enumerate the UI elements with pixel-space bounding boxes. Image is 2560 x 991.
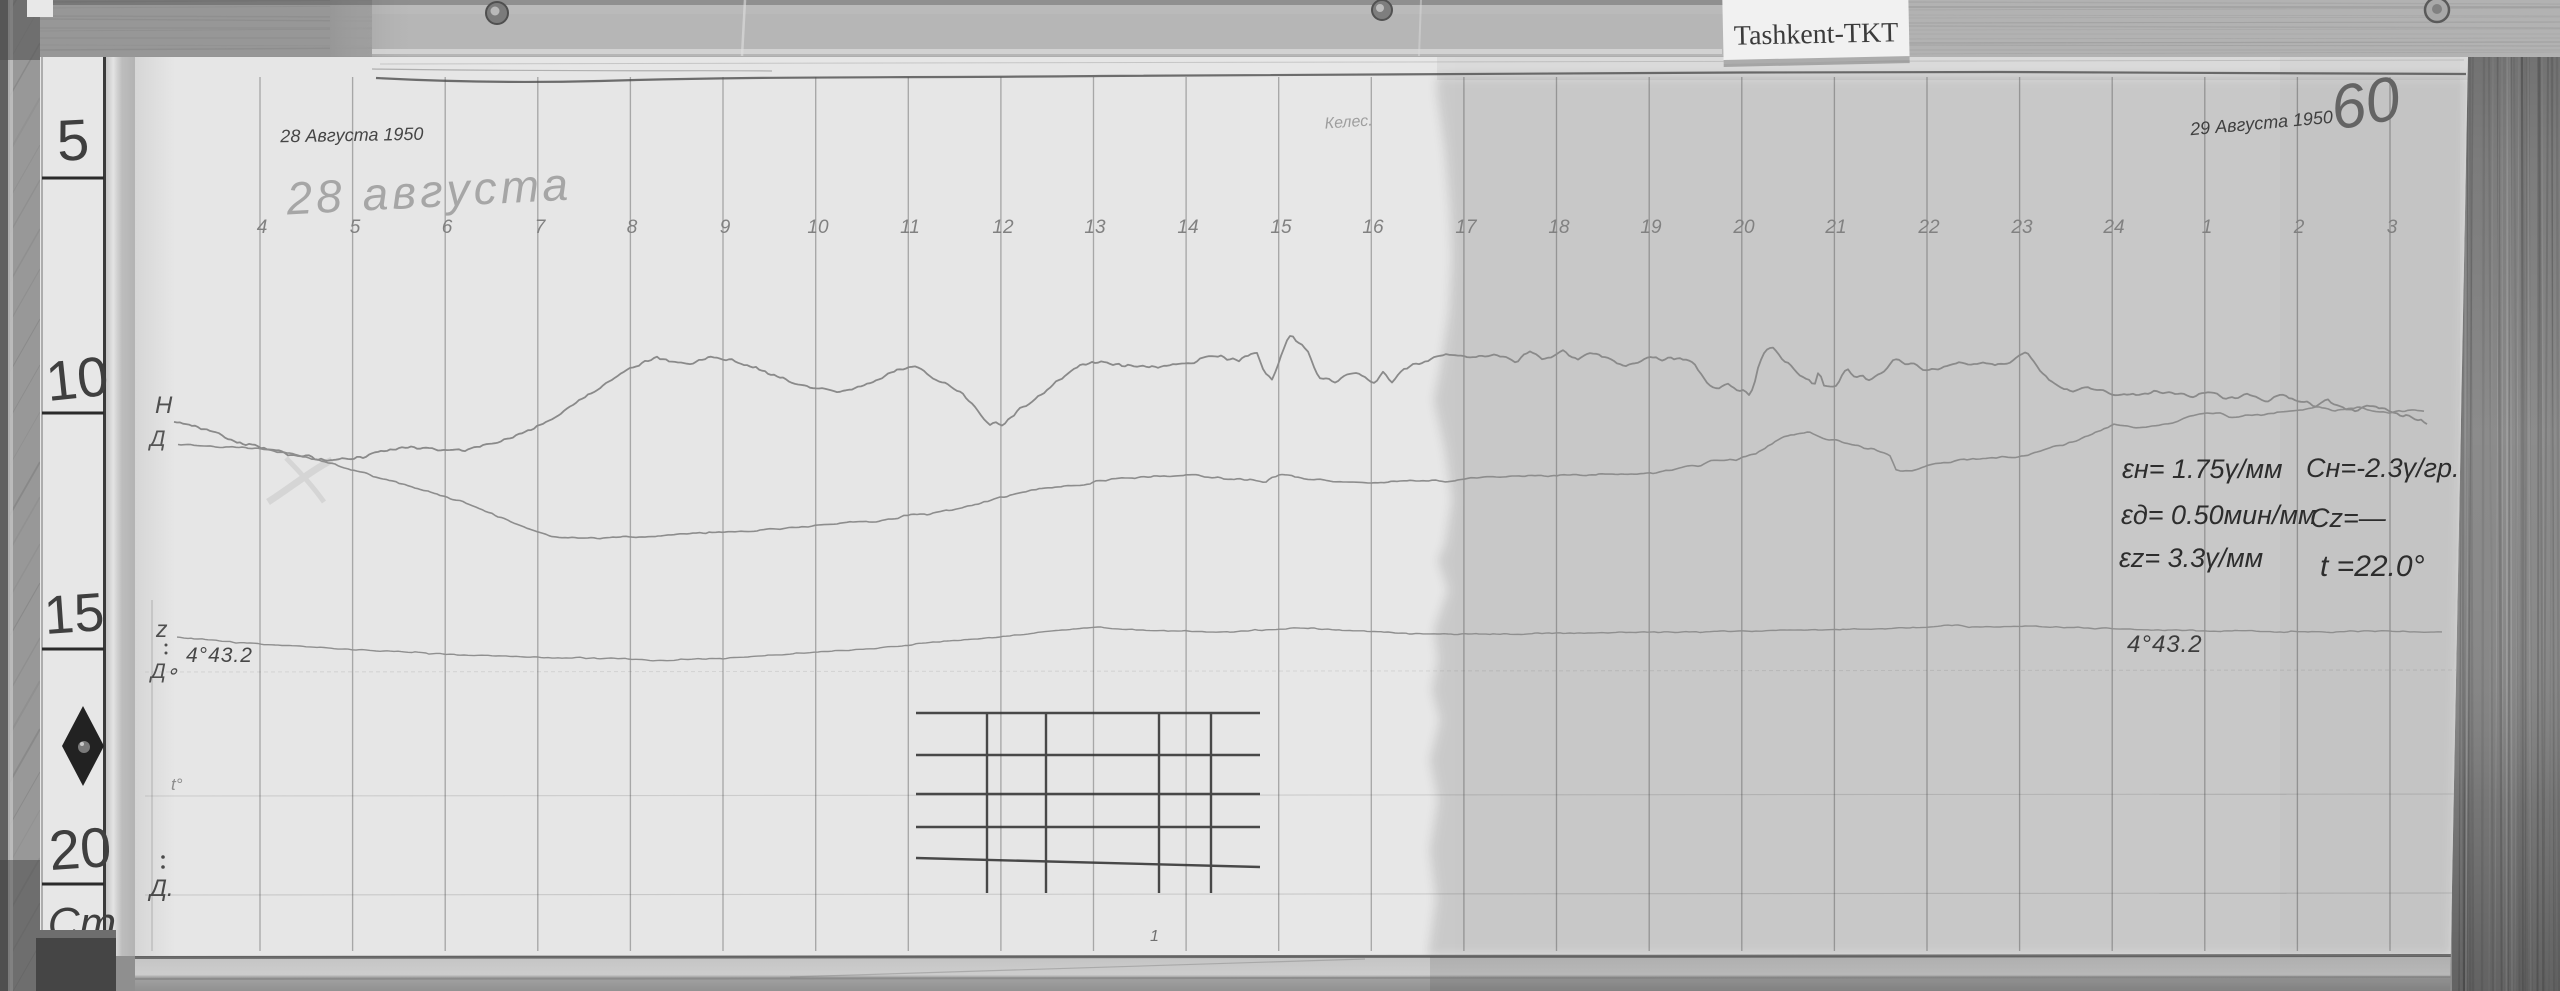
svg-text:z: z [155,616,168,642]
svg-text:8: 8 [627,217,638,238]
svg-text:Сz=—: Сz=— [2310,503,2387,533]
svg-text:17: 17 [1455,217,1478,238]
svg-text:4: 4 [257,217,268,238]
svg-text:10: 10 [807,217,829,238]
svg-text:18: 18 [1548,217,1570,238]
svg-text:13: 13 [1084,217,1106,238]
svg-text:20: 20 [47,815,114,882]
svg-text:24: 24 [2102,217,2124,238]
svg-text:28 Августа 1950: 28 Августа 1950 [279,124,423,147]
svg-text:Келес.: Келес. [1324,112,1373,132]
svg-text:Сн=-2.3γ/гр.: Сн=-2.3γ/гр. [2306,453,2459,483]
svg-text:12: 12 [992,217,1014,238]
svg-text:16: 16 [1362,217,1384,238]
svg-text:Tashkent-TKT: Tashkent-TKT [1734,17,1899,51]
svg-text:14: 14 [1177,217,1198,238]
svg-text:23: 23 [2010,217,2033,238]
svg-text:22: 22 [1917,217,1940,238]
svg-text:7: 7 [535,217,547,238]
svg-text:Д.: Д. [147,875,174,902]
svg-text:εz= 3.3γ/мм: εz= 3.3γ/мм [2119,543,2263,573]
svg-text:t =22.0°: t =22.0° [2320,550,2425,583]
svg-text:4°43.2: 4°43.2 [2127,631,2203,658]
svg-text:Д∘: Д∘ [149,660,179,683]
svg-text:11: 11 [900,217,920,238]
svg-text:60: 60 [2325,64,2405,144]
svg-text:6: 6 [442,217,453,238]
svg-text:20: 20 [1732,217,1755,238]
svg-text:Н: Н [155,392,173,419]
svg-text:t°: t° [171,775,183,794]
svg-text:9: 9 [720,217,731,238]
svg-text:1: 1 [1150,928,1159,945]
svg-text:1: 1 [2202,217,2213,238]
svg-text:εн= 1.75γ/мм: εн= 1.75γ/мм [2122,454,2283,484]
svg-text:15: 15 [42,582,106,646]
svg-text:15: 15 [1270,217,1292,238]
svg-text:2: 2 [2293,217,2305,238]
svg-text:3: 3 [2387,217,2398,238]
svg-text:εд= 0.50мин/мм: εд= 0.50мин/мм [2121,500,2317,530]
svg-text:21: 21 [1824,217,1846,238]
svg-text:10: 10 [43,344,112,413]
svg-text:4°43.2: 4°43.2 [186,644,253,667]
svg-text:Д: Д [147,426,166,451]
svg-text:19: 19 [1640,217,1662,238]
svg-text:5: 5 [55,107,91,174]
